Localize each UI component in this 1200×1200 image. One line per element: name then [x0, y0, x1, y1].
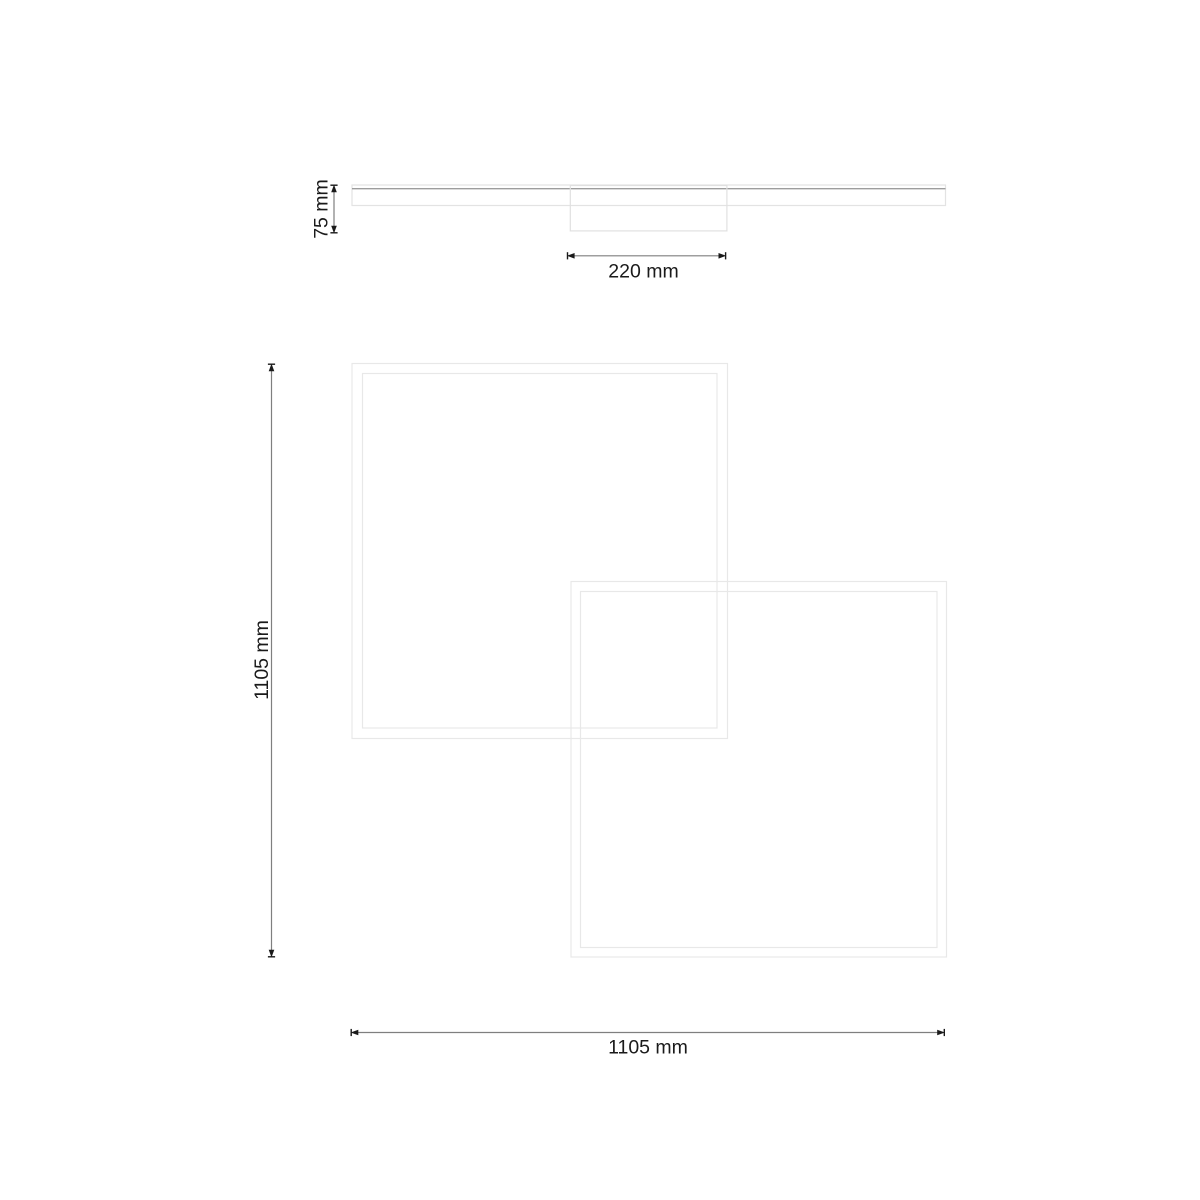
- svg-text:1105 mm: 1105 mm: [251, 620, 273, 700]
- svg-text:1105 mm: 1105 mm: [608, 1037, 688, 1059]
- svg-text:75 mm: 75 mm: [311, 179, 333, 239]
- svg-text:220 mm: 220 mm: [608, 261, 678, 283]
